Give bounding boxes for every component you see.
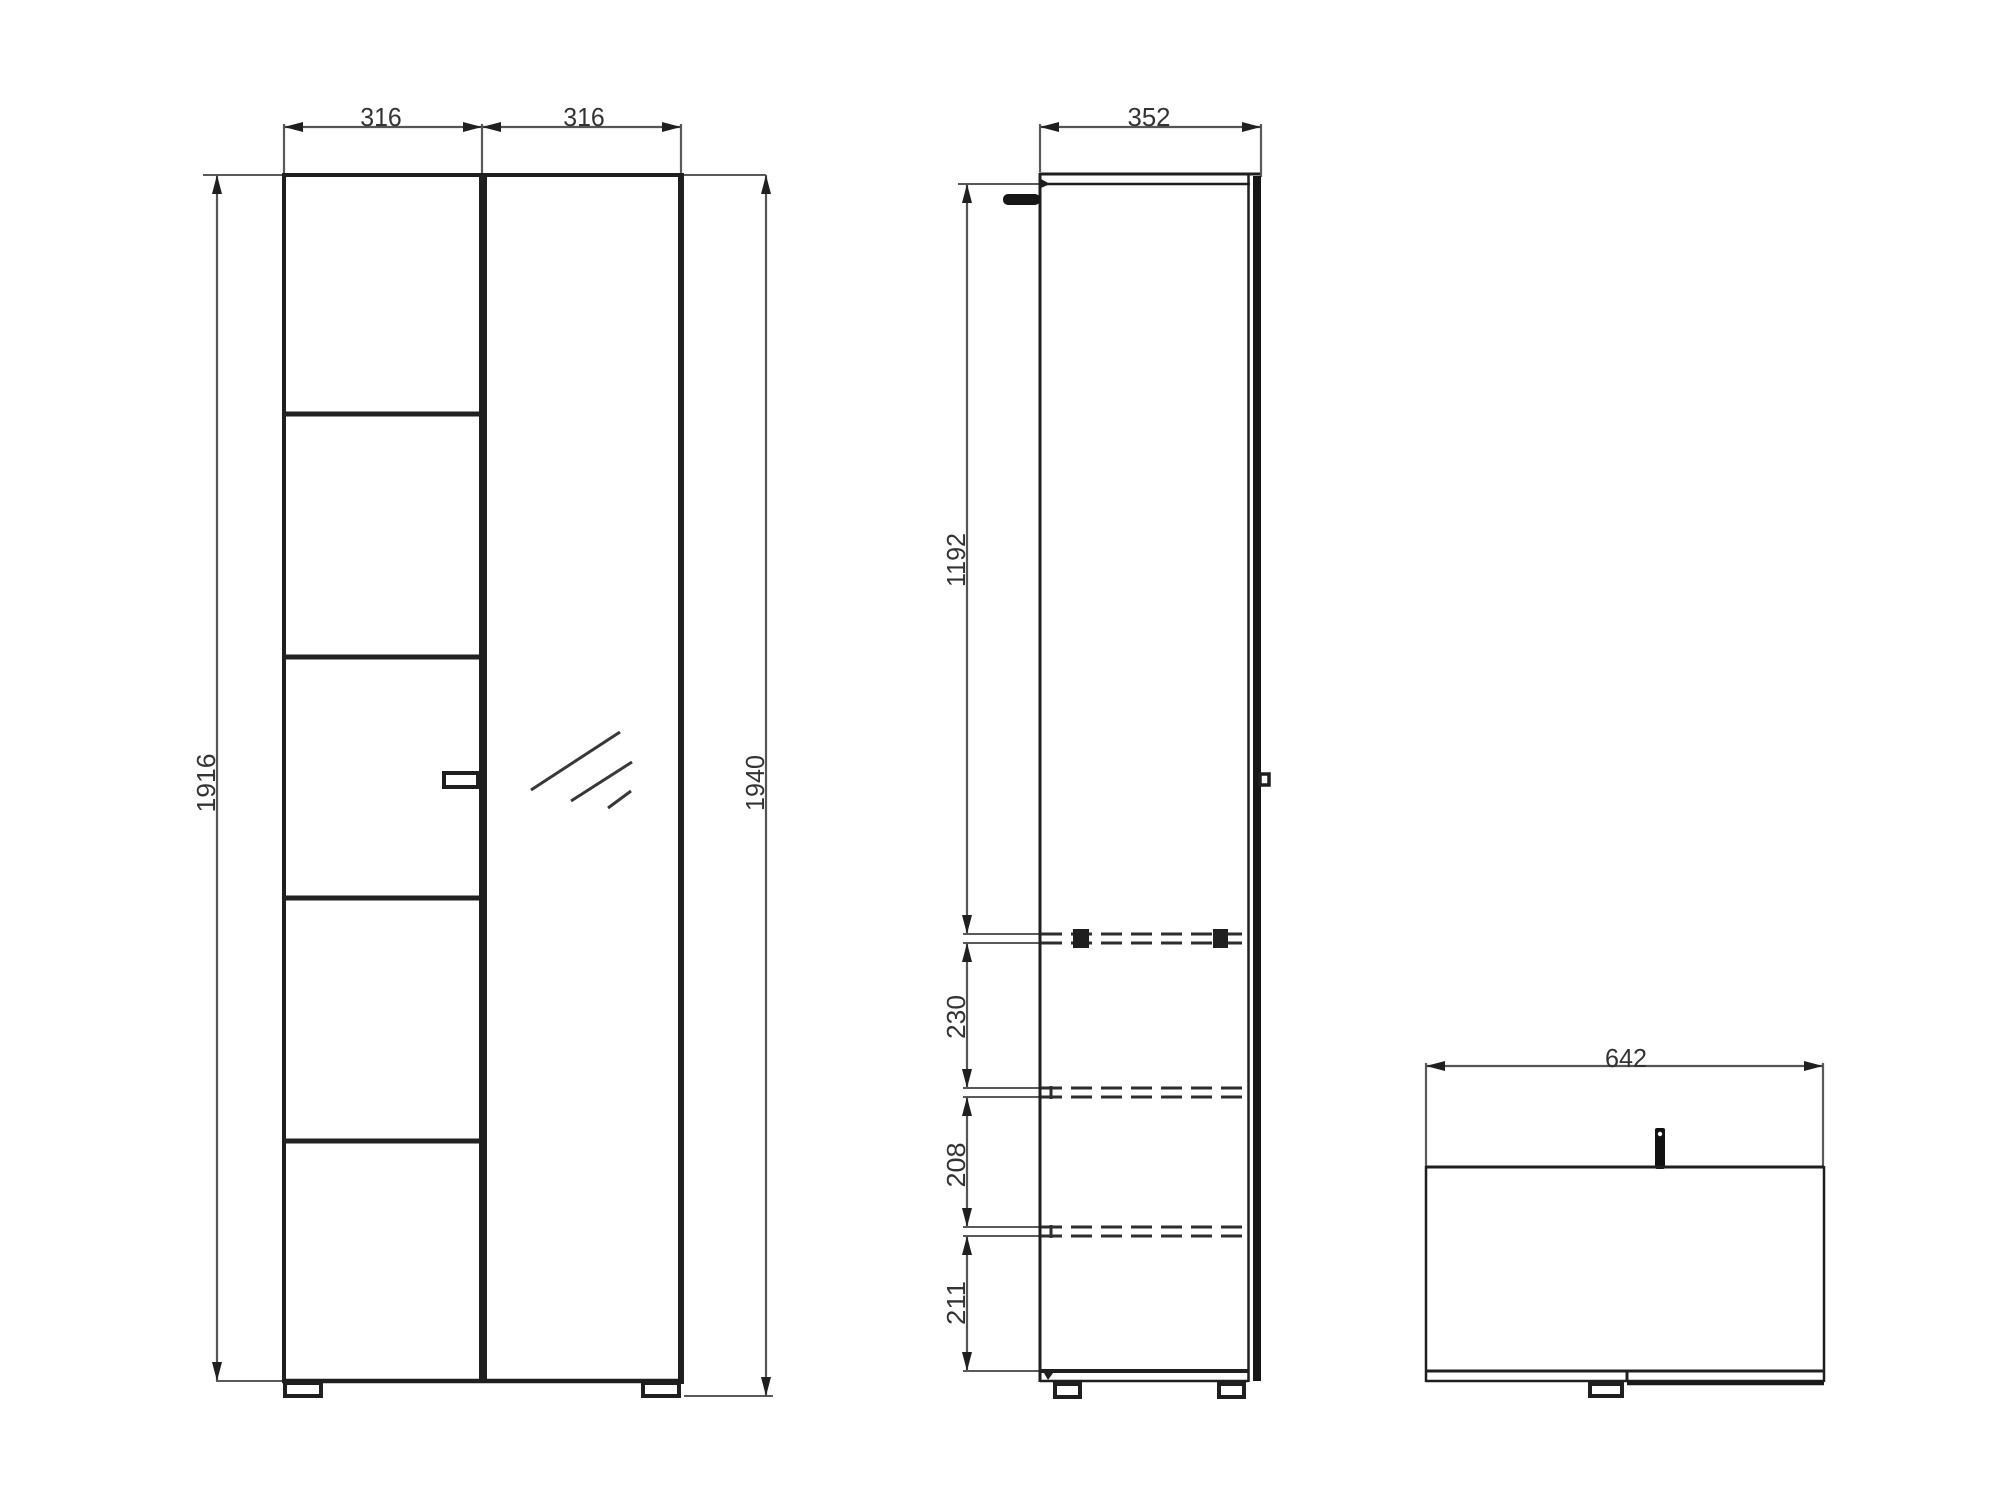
svg-text:1192: 1192: [941, 533, 971, 587]
svg-text:230: 230: [941, 995, 971, 1039]
svg-text:1916: 1916: [191, 754, 221, 813]
svg-text:642: 642: [1605, 1043, 1647, 1073]
svg-text:352: 352: [1128, 102, 1171, 132]
svg-text:316: 316: [360, 102, 402, 132]
svg-text:1940: 1940: [740, 755, 770, 811]
svg-text:208: 208: [941, 1143, 971, 1188]
svg-text:316: 316: [563, 102, 605, 132]
svg-text:211: 211: [941, 1281, 971, 1325]
